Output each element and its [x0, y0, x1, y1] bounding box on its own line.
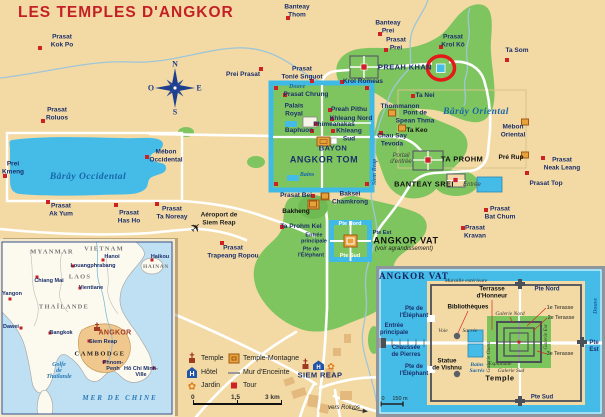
- temple-icon: [186, 352, 198, 365]
- preah-khan-icon: [350, 56, 378, 78]
- legend-item-temple: Temple: [186, 352, 224, 365]
- ta-prohm-icon: [413, 151, 443, 170]
- banteay-srei-icon: [447, 174, 465, 187]
- scale-end: 3 km: [265, 394, 280, 401]
- scale-bar: 0 1,5 3 km: [193, 394, 283, 408]
- bayon-icon: [317, 137, 330, 146]
- sras-srang-pond: [477, 177, 502, 192]
- svg-text:H: H: [316, 365, 320, 371]
- scale-tick: [237, 400, 238, 405]
- jardin-icon: ✿: [327, 363, 335, 373]
- legend-item-jardin: ✿ Jardin: [186, 379, 220, 392]
- svg-text:H: H: [189, 371, 194, 378]
- jardin-icon: ✿: [186, 379, 198, 392]
- library-dot: [454, 333, 460, 339]
- vishnu-statue-dot: [454, 371, 460, 377]
- legend-label-jardin: Jardin: [201, 382, 220, 389]
- angkor-thom: [271, 83, 372, 190]
- palais-royal-icon: [303, 117, 317, 127]
- temple-montagne-icon: [228, 352, 240, 365]
- legend-item-mur: Mur d'Enceinte: [228, 366, 289, 379]
- wall-line-icon: [228, 366, 240, 379]
- scale-mid: 1,5: [231, 394, 240, 401]
- legend-item-tour: Tour: [228, 379, 257, 392]
- inset-southeast-asia: [0, 238, 178, 417]
- legend-label-hotel: Hôtel: [201, 369, 217, 376]
- map-title: LES TEMPLES D'ANGKOR: [18, 4, 234, 22]
- angkor-temples-map: ✈ H ✿: [0, 0, 605, 417]
- hotel-icon: H: [186, 366, 198, 379]
- svg-text:✿: ✿: [188, 382, 196, 393]
- legend-item-temple-montagne: Temple-Montagne: [228, 352, 299, 365]
- scale-tick: [281, 400, 282, 405]
- legend-label-temple-montagne: Temple-Montagne: [243, 355, 299, 362]
- legend-label-tour: Tour: [243, 382, 257, 389]
- legend-label-temple: Temple: [201, 355, 224, 362]
- bains-sacres-pool: [468, 330, 483, 342]
- legend-label-mur: Mur d'Enceinte: [243, 369, 289, 376]
- inset-angkor-vat: [376, 266, 605, 417]
- tour-icon: [228, 379, 240, 392]
- angkor-vat-main: [329, 220, 372, 262]
- legend-item-hotel: H Hôtel: [186, 366, 217, 379]
- baksei-chamkrong-icon: [321, 193, 329, 200]
- west-wall-gate: [427, 315, 435, 322]
- temple-icon: [303, 364, 309, 369]
- scale-tick: [193, 400, 194, 405]
- map-terrain: ✈ H ✿: [0, 0, 605, 417]
